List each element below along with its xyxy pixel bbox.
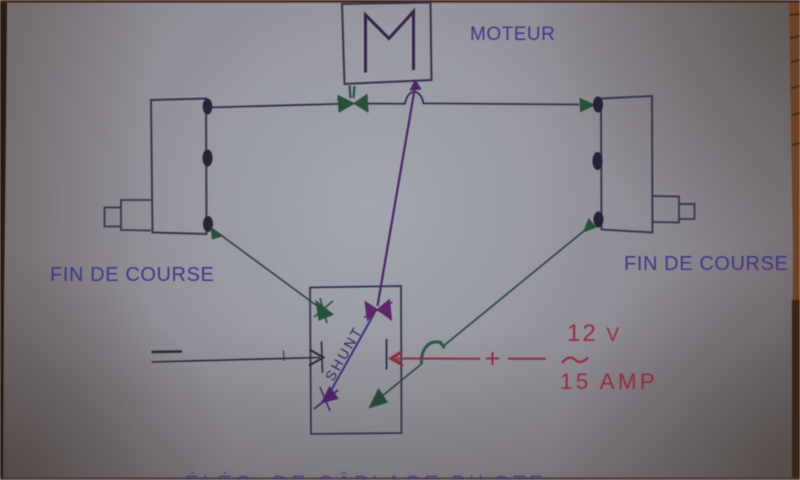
svg-text:FIN DE COURSE: FIN DE COURSE: [50, 264, 214, 286]
svg-text:12 V: 12 V: [567, 320, 621, 347]
svg-text:FIN DE COURSE: FIN DE COURSE: [624, 253, 788, 275]
svg-text:15 AMP: 15 AMP: [560, 369, 658, 394]
svg-text:MOTEUR: MOTEUR: [470, 24, 555, 45]
svg-text:ÉLÉC. DE CÂBLAGE PILOTE: ÉLÉC. DE CÂBLAGE PILOTE: [185, 472, 547, 480]
